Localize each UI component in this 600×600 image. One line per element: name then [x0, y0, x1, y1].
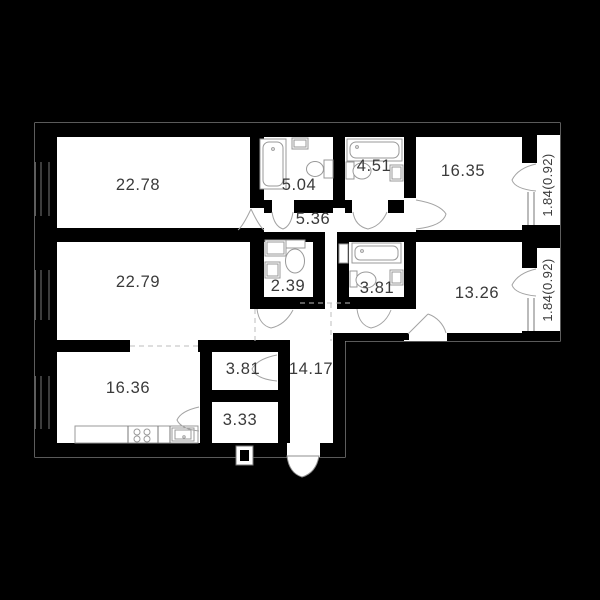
balcony-divider — [522, 225, 560, 248]
wall-segment — [278, 382, 290, 443]
wall-segment — [200, 432, 212, 443]
balcony-label-bottom: 1.84(0.92) — [540, 258, 555, 321]
wall-segment — [57, 228, 252, 242]
room-label-bath2: 4.51 — [357, 157, 392, 175]
balcony-wall — [522, 331, 560, 341]
toilet — [286, 240, 306, 273]
wall-left — [35, 135, 57, 162]
wall-segment — [212, 390, 278, 402]
room-label-corridor: 5.36 — [296, 210, 331, 228]
door-gap — [352, 200, 388, 213]
wall-segment — [57, 340, 130, 352]
wall-segment — [200, 340, 212, 406]
floor-plan: 22.78 22.79 16.36 5.04 4.51 16.35 5.36 2… — [0, 0, 600, 600]
wall-top — [35, 123, 560, 135]
balcony-wall — [522, 248, 537, 268]
balcony-wall — [522, 135, 537, 163]
room-label-bedroom2: 13.26 — [455, 284, 499, 302]
bathtub — [352, 243, 401, 263]
wall-segment — [404, 137, 416, 198]
sink — [265, 262, 280, 278]
room-label-wc: 2.39 — [271, 277, 306, 295]
wall-segment — [333, 333, 404, 341]
washing-machine — [265, 240, 286, 256]
room-label-hallway: 14.17 — [289, 360, 333, 378]
wall-segment — [345, 200, 352, 213]
wall-segment — [333, 137, 345, 200]
door-gap — [408, 333, 447, 341]
room-label-living-1: 22.78 — [116, 176, 160, 194]
room-label-bath3: 3.81 — [360, 279, 395, 297]
room-label-bath1: 5.04 — [282, 176, 317, 194]
wall-left — [35, 320, 57, 376]
room-label-storage: 3.81 — [226, 360, 261, 378]
wall-segment — [278, 340, 290, 354]
room-label-living-2: 22.79 — [116, 273, 160, 291]
wall-left — [35, 216, 57, 270]
hallway-floor — [290, 333, 333, 443]
room-living-2-floor — [57, 242, 252, 340]
vent-shaft — [236, 446, 253, 465]
sink — [292, 138, 308, 149]
shelf — [339, 244, 348, 263]
wall-segment — [313, 232, 325, 297]
room-bedroom1-floor — [416, 137, 522, 230]
corridor-column-floor — [325, 232, 337, 309]
kitchen-counter — [75, 426, 198, 443]
wall-segment — [447, 333, 522, 341]
wall-segment — [388, 200, 404, 213]
room-label-kitchen: 16.36 — [106, 379, 150, 397]
sink — [390, 165, 403, 181]
wall-segment — [333, 341, 345, 457]
door-gap — [272, 200, 294, 213]
wall-segment — [404, 232, 416, 309]
door-gap — [287, 443, 320, 457]
balcony-label-top: 1.84(0.92) — [540, 153, 555, 216]
wall-segment — [252, 297, 256, 309]
wall-segment — [264, 200, 272, 213]
door-gap — [404, 198, 416, 232]
room-label-bedroom1: 16.35 — [441, 162, 485, 180]
room-label-pantry: 3.33 — [223, 411, 258, 429]
wall-segment — [416, 230, 522, 242]
